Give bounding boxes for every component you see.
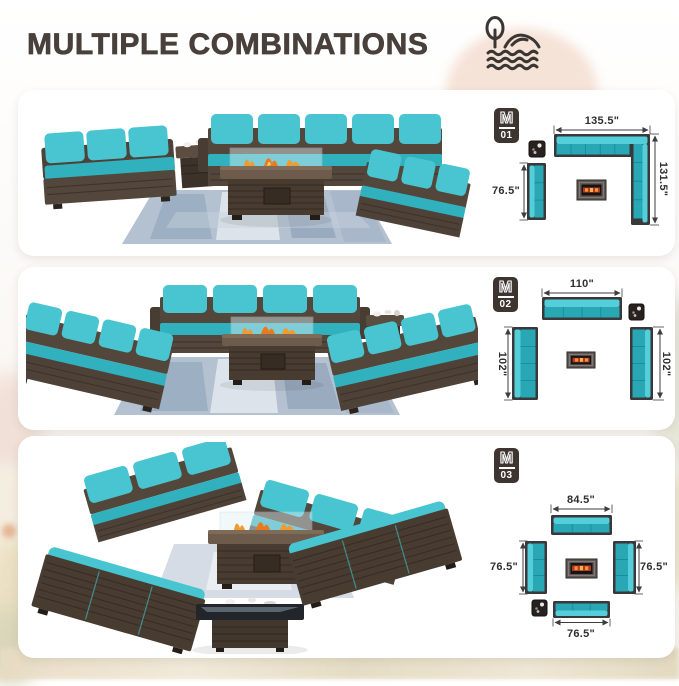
combination-card-3: M 03	[18, 436, 675, 658]
layout-diagram-2: M 02	[473, 267, 675, 430]
dimension-top: 110"	[547, 277, 617, 291]
combination-card-2: M 02	[18, 267, 675, 430]
top-sofa-top-view	[551, 515, 612, 535]
fire-pit-table	[220, 317, 324, 391]
coffee-table-with-cups	[192, 598, 308, 655]
badge-letter: M	[500, 451, 513, 466]
layout-diagram-3: M 03	[473, 436, 675, 658]
dimension-top: 84.5"	[546, 493, 616, 507]
combination-badge-m01: M 01	[494, 108, 519, 143]
combination-photo-2	[26, 267, 478, 425]
dimension-right: 76.5"	[619, 560, 679, 574]
right-sofa-top-view	[630, 327, 653, 400]
combination-badge-m03: M 03	[494, 448, 519, 483]
header: MULTIPLE COMBINATIONS	[0, 0, 679, 88]
side-table-top-icon	[529, 141, 545, 157]
badge-number: 02	[499, 300, 511, 310]
badge-number: 01	[500, 131, 512, 141]
badge-divider	[499, 127, 515, 129]
layout-diagram-1: M 01	[473, 90, 675, 256]
dimension-right: 131.5"	[656, 144, 670, 214]
dimension-left: 76.5"	[469, 560, 539, 574]
left-sofa-top-view	[512, 327, 538, 400]
combination-photo-3	[24, 442, 476, 654]
combination-photo-1	[26, 92, 478, 254]
beach-island-icon	[481, 16, 543, 72]
fire-pit-table	[220, 148, 332, 227]
badge-divider	[498, 296, 514, 298]
dimension-right: 102"	[659, 329, 673, 399]
side-table-top-icon	[629, 304, 644, 320]
top-sofa-top-view	[542, 297, 622, 320]
badge-divider	[499, 467, 515, 469]
fire-pit-top-icon	[566, 559, 597, 578]
badge-number: 03	[500, 471, 512, 481]
background-blob	[2, 524, 16, 538]
badge-letter: M	[500, 111, 513, 126]
bottom-sofa-top-view	[553, 601, 610, 618]
dimension-left: 102"	[495, 329, 509, 399]
badge-letter: M	[499, 280, 512, 295]
combination-badge-m02: M 02	[493, 277, 518, 312]
fire-pit-top-icon	[577, 180, 606, 200]
dimension-left: 76.5"	[471, 184, 541, 198]
dimension-bottom: 76.5"	[546, 627, 616, 641]
dimension-top: 135.5"	[567, 114, 637, 128]
page-title: MULTIPLE COMBINATIONS	[27, 28, 428, 62]
fire-pit-top-icon	[567, 352, 595, 368]
side-table-top-icon	[532, 600, 547, 616]
product-infographic: MULTIPLE COMBINATIONS	[0, 0, 679, 679]
combination-card-1: M 01	[18, 90, 675, 256]
